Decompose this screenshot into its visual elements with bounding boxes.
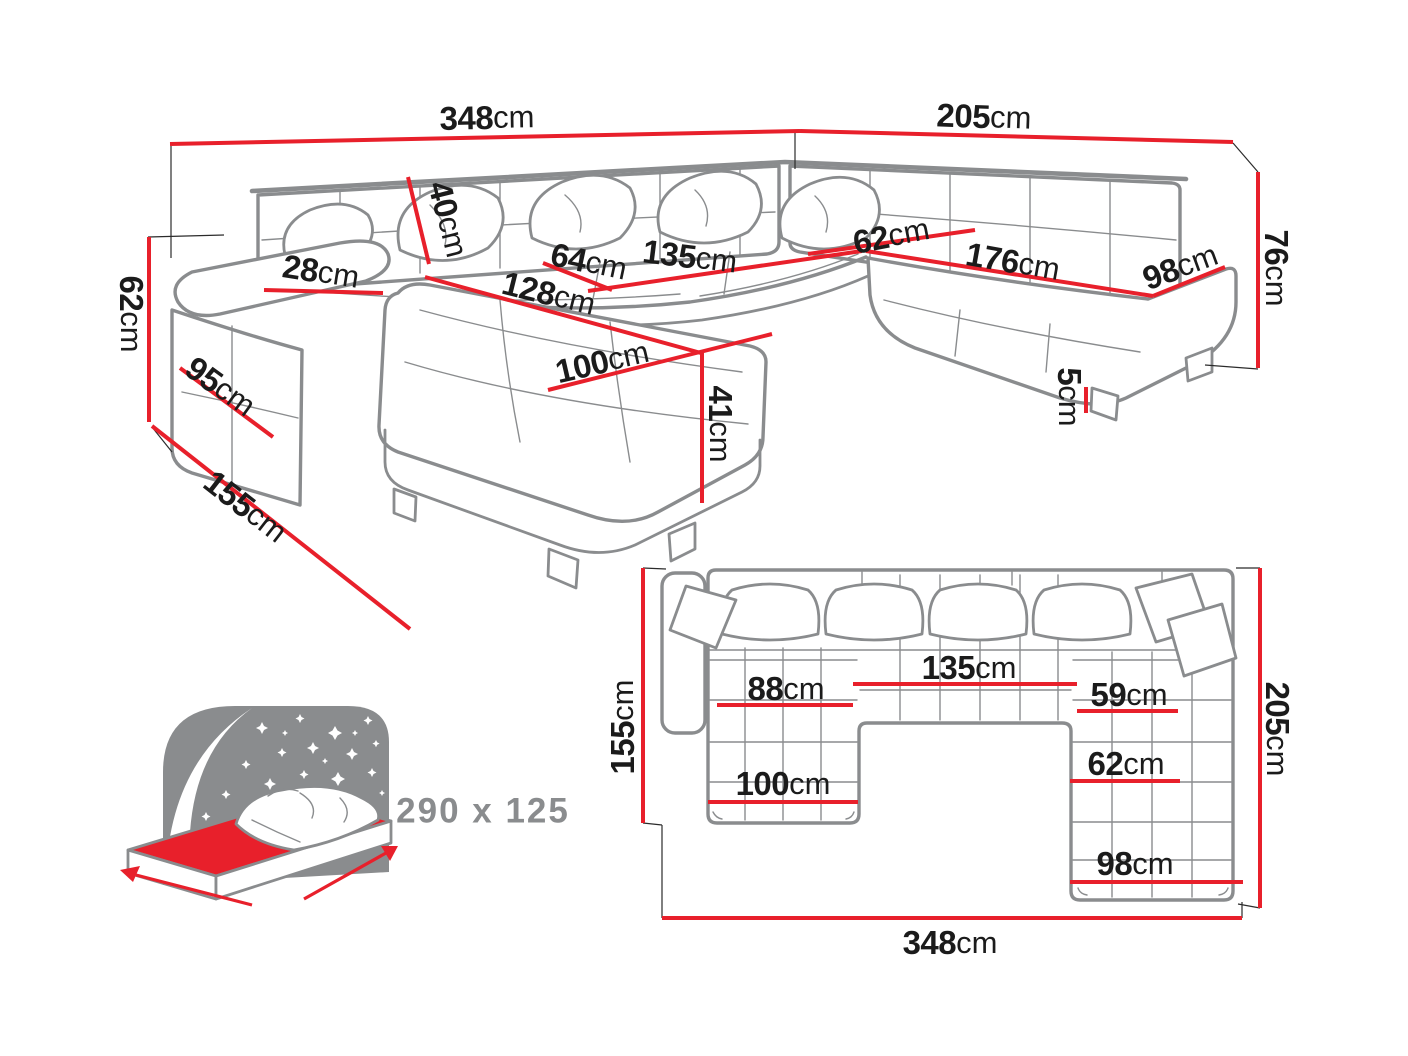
bed-icon: 290 x 125 (120, 706, 570, 905)
sleeping-area-label: 290 x 125 (396, 792, 570, 831)
plan-label-right-depth: 205cm (1260, 682, 1297, 777)
plan-label-middle-seat-width: 135cm (922, 649, 1017, 686)
label-leg-height: 5cm (1052, 367, 1089, 426)
plan-label-chaise-inner-width: 88cm (747, 670, 824, 707)
label-seat-height: 41cm (703, 385, 740, 462)
plan-label-chaise-width: 100cm (736, 765, 831, 802)
dimension-diagram: 348cm 205cm 76cm 62cm 95cm 155cm 28cm 40… (0, 0, 1408, 1056)
plan-label-total-width: 348cm (903, 924, 998, 961)
label-armrest-height: 62cm (114, 275, 151, 352)
plan-label-left-depth: 155cm (604, 680, 641, 775)
plan-label-right-seat-width: 62cm (1087, 745, 1164, 782)
label-right-depth: 205cm (936, 96, 1032, 136)
plan-label-end-seat-width: 98cm (1096, 845, 1173, 882)
label-back-height: 76cm (1259, 229, 1296, 306)
plan-label-right-inner-width: 59cm (1090, 676, 1167, 713)
label-back-width: 348cm (439, 98, 535, 137)
sofa-dimension-drawing: 348cm 205cm 76cm 62cm 95cm 155cm 28cm 40… (0, 0, 1408, 1056)
